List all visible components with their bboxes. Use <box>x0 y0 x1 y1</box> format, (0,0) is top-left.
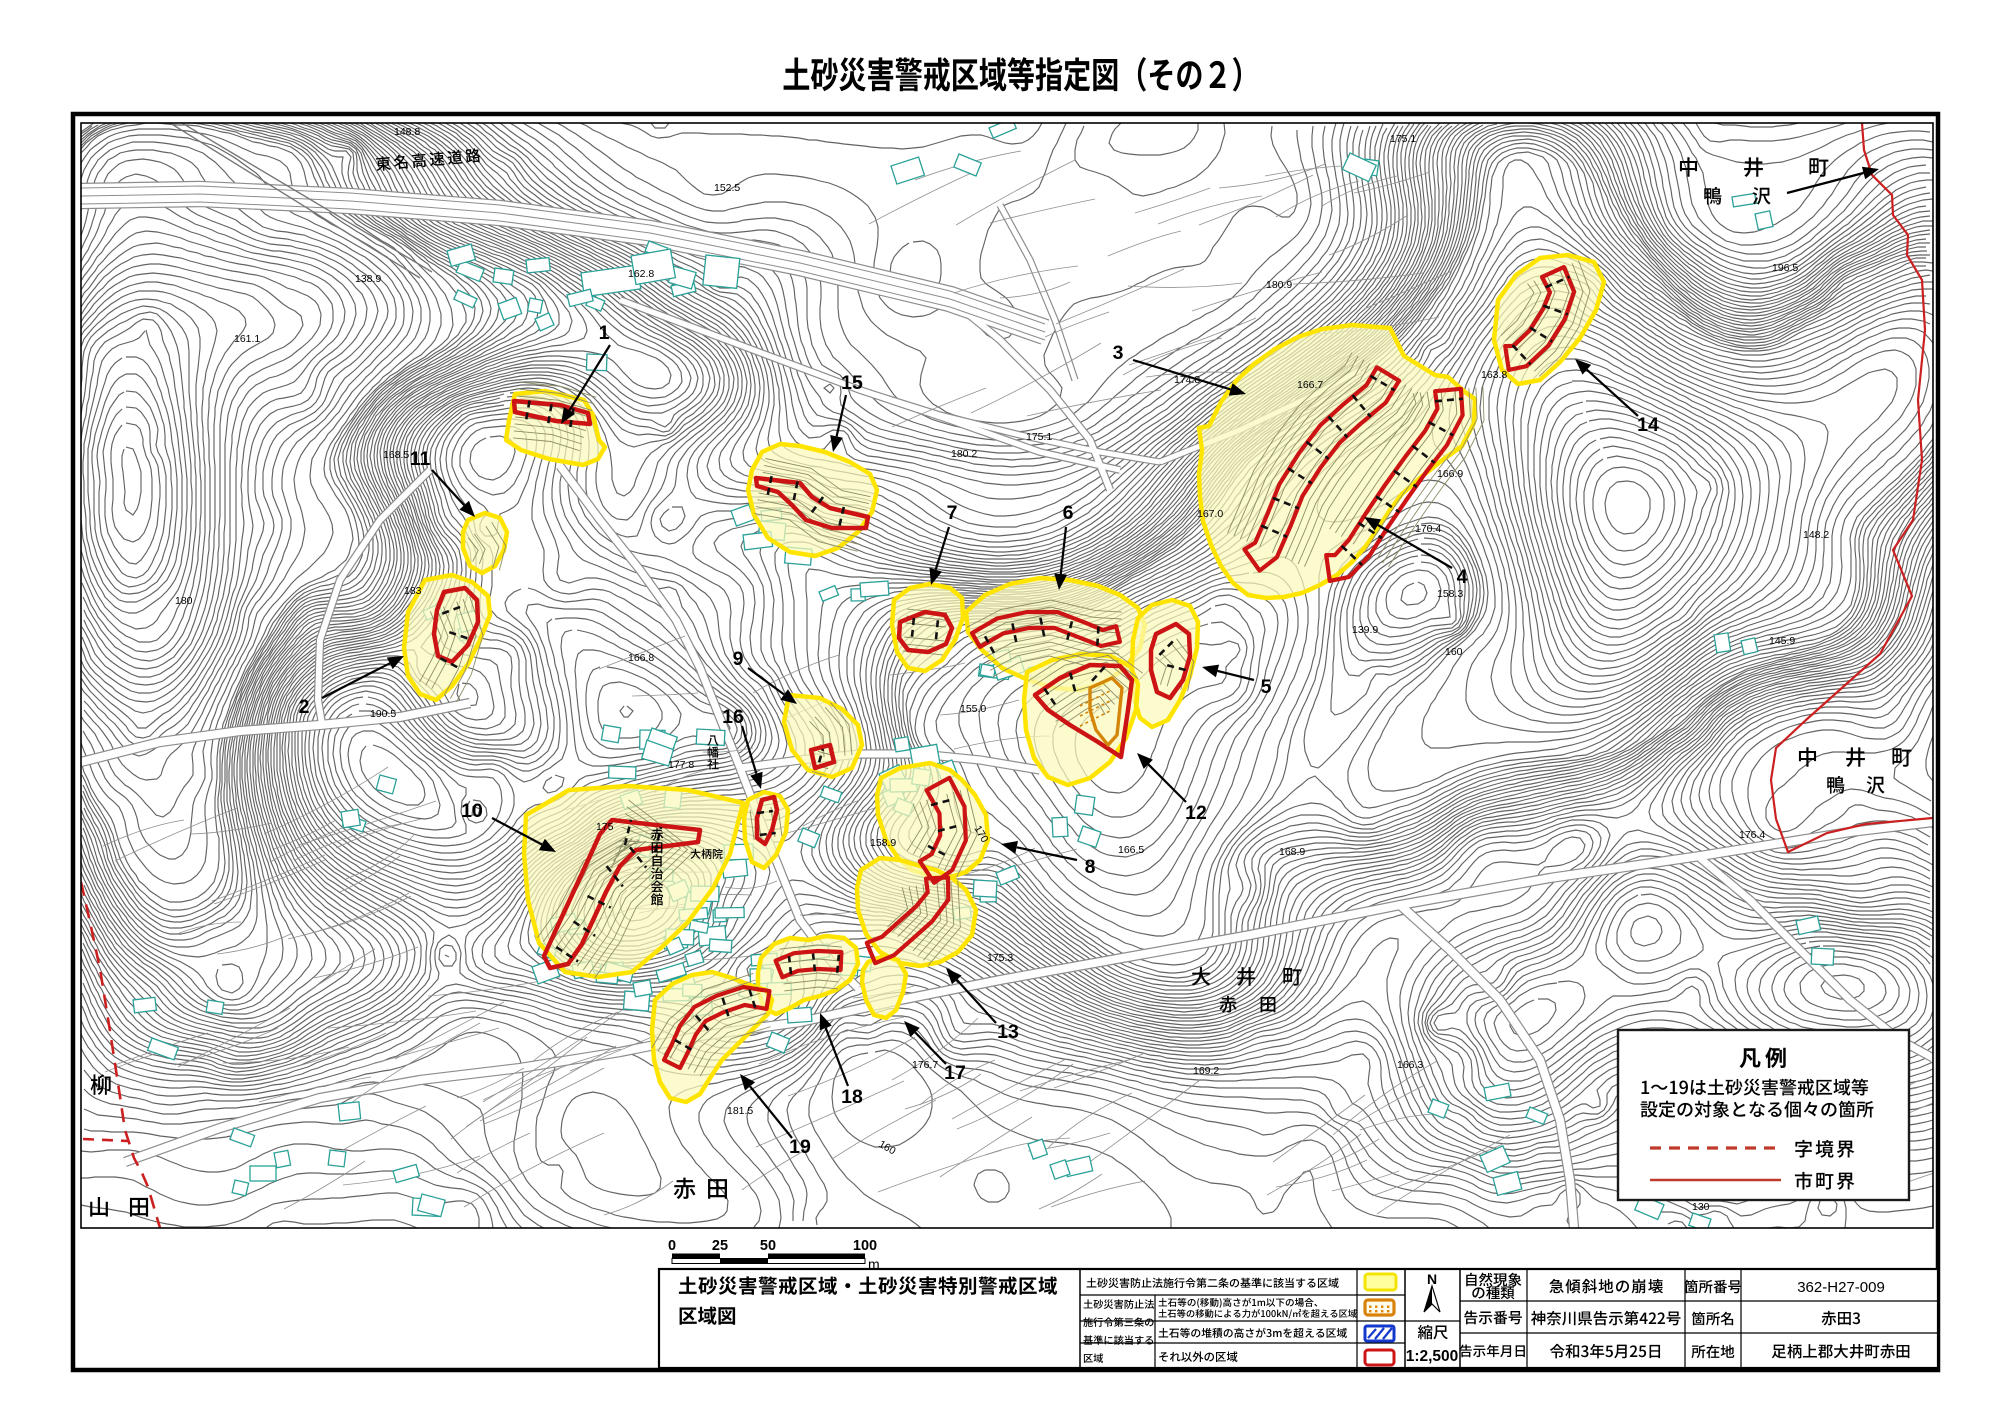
svg-text:176.7: 176.7 <box>912 1059 938 1071</box>
svg-text:183: 183 <box>404 585 422 597</box>
svg-text:166.7: 166.7 <box>1297 379 1323 391</box>
svg-text:148.2: 148.2 <box>1803 529 1829 541</box>
svg-text:139.9: 139.9 <box>1352 624 1378 636</box>
svg-text:1: 1 <box>599 322 610 344</box>
svg-text:170.4: 170.4 <box>1415 523 1441 535</box>
svg-text:166.9: 166.9 <box>1437 468 1463 480</box>
svg-text:169.2: 169.2 <box>1193 1065 1219 1077</box>
svg-text:10: 10 <box>461 800 483 822</box>
svg-text:15: 15 <box>841 372 863 394</box>
svg-text:11: 11 <box>410 448 431 470</box>
svg-text:9: 9 <box>733 648 744 670</box>
svg-text:175.1: 175.1 <box>1390 133 1416 145</box>
svg-text:180.9: 180.9 <box>1266 279 1292 291</box>
svg-text:0: 0 <box>668 1238 676 1254</box>
svg-text:14: 14 <box>1637 414 1659 436</box>
svg-text:145.9: 145.9 <box>1769 635 1795 647</box>
svg-text:161.1: 161.1 <box>234 333 260 345</box>
svg-text:177.8: 177.8 <box>668 759 694 771</box>
svg-text:168.9: 168.9 <box>1279 846 1305 858</box>
svg-text:2: 2 <box>299 696 310 718</box>
svg-text:166.3: 166.3 <box>1397 1059 1423 1071</box>
svg-text:180: 180 <box>175 595 193 607</box>
svg-text:176.4: 176.4 <box>1739 829 1765 841</box>
svg-text:175.3: 175.3 <box>987 952 1013 964</box>
svg-text:3: 3 <box>1113 342 1124 364</box>
svg-text:190.5: 190.5 <box>370 708 396 720</box>
svg-text:175.1: 175.1 <box>1026 431 1052 443</box>
svg-text:130: 130 <box>1692 1201 1710 1213</box>
svg-text:18: 18 <box>841 1086 863 1108</box>
svg-text:25: 25 <box>712 1238 728 1254</box>
svg-text:8: 8 <box>1085 856 1096 878</box>
svg-text:5: 5 <box>1261 676 1272 698</box>
svg-text:6: 6 <box>1063 502 1074 524</box>
svg-text:166.8: 166.8 <box>628 652 654 664</box>
svg-text:138.9: 138.9 <box>355 273 381 285</box>
svg-text:162.8: 162.8 <box>628 268 654 280</box>
svg-text:13: 13 <box>997 1021 1019 1043</box>
svg-text:163.8: 163.8 <box>1481 369 1507 381</box>
svg-text:180.2: 180.2 <box>951 448 977 460</box>
svg-text:160: 160 <box>1445 646 1463 658</box>
svg-text:152.5: 152.5 <box>714 182 740 194</box>
svg-text:16: 16 <box>722 706 744 728</box>
svg-text:50: 50 <box>760 1238 776 1254</box>
svg-text:155.0: 155.0 <box>960 703 986 715</box>
svg-text:19: 19 <box>789 1136 811 1158</box>
svg-text:166.5: 166.5 <box>1118 844 1144 856</box>
svg-text:175: 175 <box>596 821 614 833</box>
svg-text:196.5: 196.5 <box>1772 262 1798 274</box>
svg-text:181.5: 181.5 <box>727 1105 753 1117</box>
svg-text:7: 7 <box>947 502 958 524</box>
svg-text:167.0: 167.0 <box>1197 508 1223 520</box>
svg-text:148.8: 148.8 <box>394 126 420 138</box>
svg-text:362-H27-009: 362-H27-009 <box>1797 1279 1885 1296</box>
svg-text:100: 100 <box>853 1238 877 1254</box>
svg-text:12: 12 <box>1185 802 1207 824</box>
svg-text:17: 17 <box>944 1062 966 1084</box>
svg-text:1:2,500: 1:2,500 <box>1406 1348 1459 1365</box>
svg-text:4: 4 <box>1457 566 1468 588</box>
svg-text:158.3: 158.3 <box>1437 588 1463 600</box>
svg-text:158.9: 158.9 <box>870 837 896 849</box>
svg-text:168.5: 168.5 <box>383 449 409 461</box>
